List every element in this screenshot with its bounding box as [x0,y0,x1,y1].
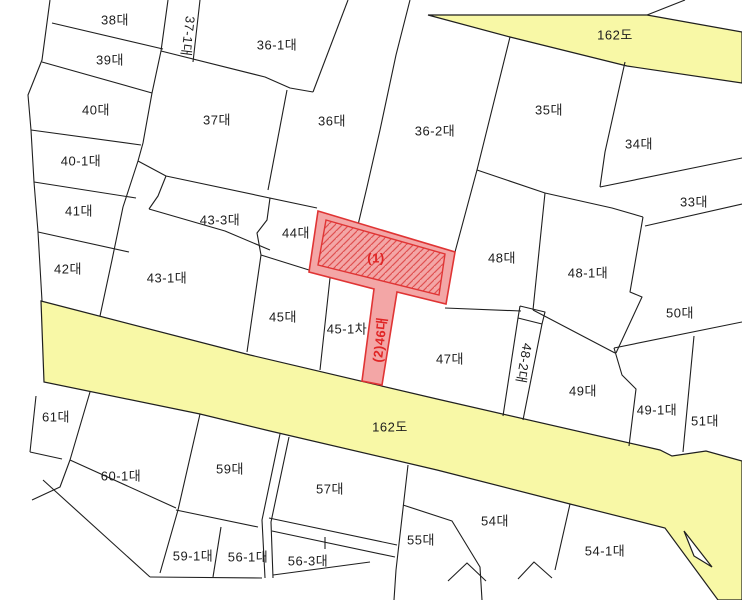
road-label-162do-0: 162도 [597,27,633,42]
parcel-label-40대: 40대 [82,102,110,117]
parcel-label-54대: 54대 [481,513,509,528]
parcel-label-57대: 57대 [316,481,344,496]
parcel-label-42대: 42대 [54,261,82,276]
parcel-label-49대: 49대 [569,383,597,398]
parcel-label-43-1대: 43-1대 [147,270,187,285]
parcel-label-56-3대: 56-3대 [288,553,328,568]
road-label-162do-1: 162도 [372,419,408,434]
parcel-label-56-1대: 56-1대 [228,549,268,564]
parcel-label-50대: 50대 [666,305,694,320]
parcel-label-45대: 45대 [269,309,297,324]
parcel-label-36대: 36대 [318,113,346,128]
parcel-label-35대: 35대 [535,102,563,117]
parcel-label-45-1차: 45-1차 [327,321,367,336]
parcel-label-51대: 51대 [691,413,719,428]
parcel-label-36-1대: 36-1대 [257,37,297,52]
parcel-label-54-1대: 54-1대 [585,543,625,558]
cadastral-map-viewport: 38대39대37-1대36-1대40대37대36대36-2대35대34대40-1… [0,0,742,600]
parcel-label-49-1대: 49-1대 [637,402,677,417]
parcel-label-33대: 33대 [680,194,708,209]
cadastral-map: 38대39대37-1대36-1대40대37대36대36-2대35대34대40-1… [0,0,742,600]
parcel-label-43-3대: 43-3대 [200,212,240,227]
parcel-label-40-1대: 40-1대 [61,153,101,168]
parcel-label-59대: 59대 [216,461,244,476]
parcel-label-55대: 55대 [407,532,435,547]
parcel-label-39대: 39대 [96,52,124,67]
parcel-label-48-1대: 48-1대 [568,265,608,280]
parcel-label-37대: 37대 [203,112,231,127]
parcel-label-48대: 48대 [488,250,516,265]
parcel-label-34대: 34대 [625,136,653,151]
parcel-label-59-1대: 59-1대 [173,548,213,563]
parcel-label-41대: 41대 [65,203,93,218]
parcel-label-61대: 61대 [42,409,70,424]
parcel-label-47대: 47대 [436,351,464,366]
parcel-label-44대: 44대 [282,225,310,240]
parcel-label-38대: 38대 [101,12,129,27]
highlight-label-(1): (1) [367,250,384,265]
parcel-label-36-2대: 36-2대 [415,123,455,138]
parcel-label-60-1대: 60-1대 [101,468,141,483]
